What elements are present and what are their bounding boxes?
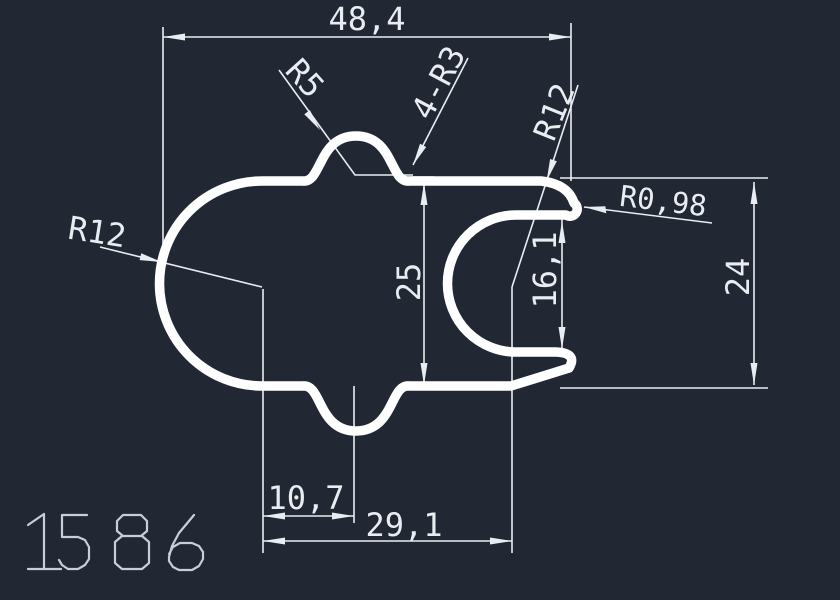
dim-width-top-label: 48,4	[328, 0, 405, 38]
dim-distance-centers-label: 29,1	[365, 506, 442, 544]
dim-height-opening-label: 16,1	[526, 231, 564, 308]
cad-drawing: 48,4 R5 4-R3 R12 R0,98 25 16,1 24 10,7 2…	[0, 0, 840, 600]
dim-height-overall-label: 24	[719, 258, 757, 297]
dim-offset-bump-label: 10,7	[267, 479, 344, 517]
cad-drawing-viewport: 48,4 R5 4-R3 R12 R0,98 25 16,1 24 10,7 2…	[0, 0, 840, 600]
dim-height-body-label: 25	[390, 263, 428, 302]
